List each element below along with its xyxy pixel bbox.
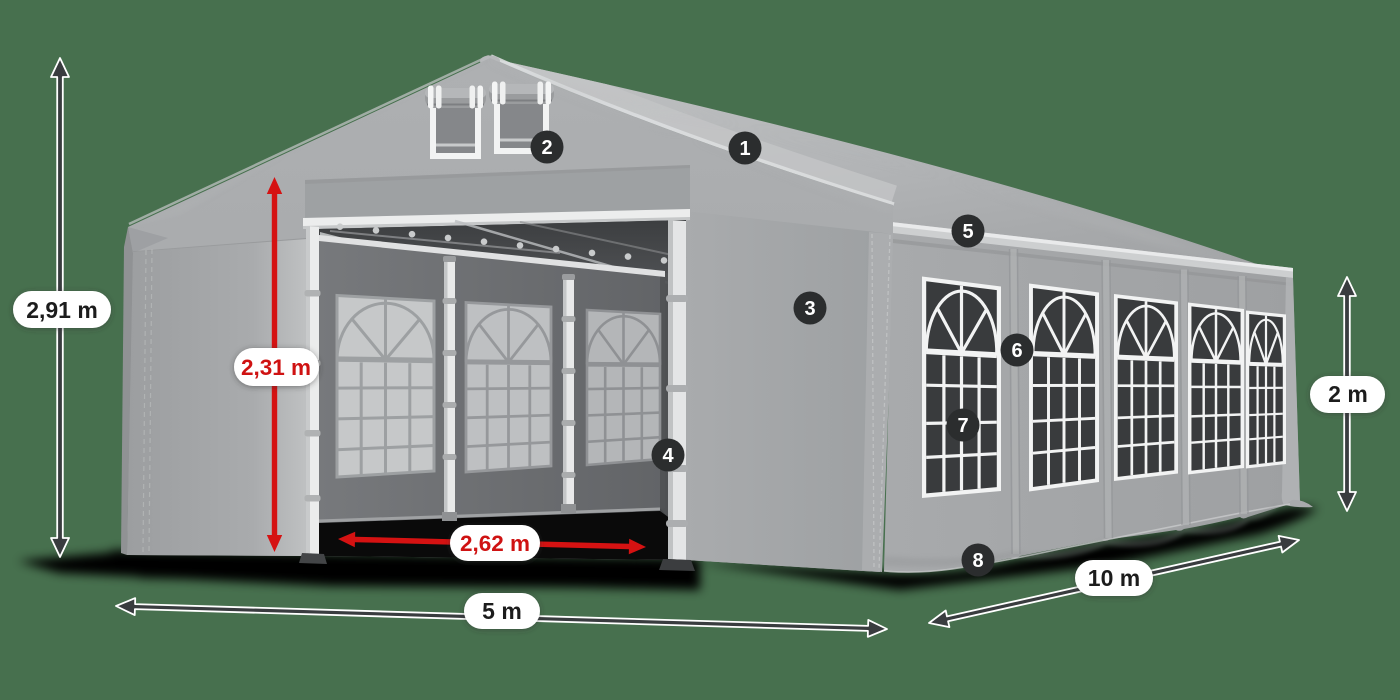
svg-text:2,62 m: 2,62 m xyxy=(460,531,530,556)
svg-text:5 m: 5 m xyxy=(482,598,522,624)
svg-text:8: 8 xyxy=(972,550,983,572)
svg-text:7: 7 xyxy=(957,415,968,437)
svg-text:4: 4 xyxy=(662,445,674,467)
svg-text:2,31 m: 2,31 m xyxy=(241,355,311,380)
svg-text:10 m: 10 m xyxy=(1088,565,1140,591)
svg-text:6: 6 xyxy=(1011,340,1022,362)
svg-text:3: 3 xyxy=(804,298,815,320)
svg-text:1: 1 xyxy=(739,138,750,160)
svg-text:2 m: 2 m xyxy=(1328,381,1368,407)
svg-text:5: 5 xyxy=(962,221,973,243)
svg-text:2,91 m: 2,91 m xyxy=(26,297,98,323)
svg-text:2: 2 xyxy=(541,137,552,159)
